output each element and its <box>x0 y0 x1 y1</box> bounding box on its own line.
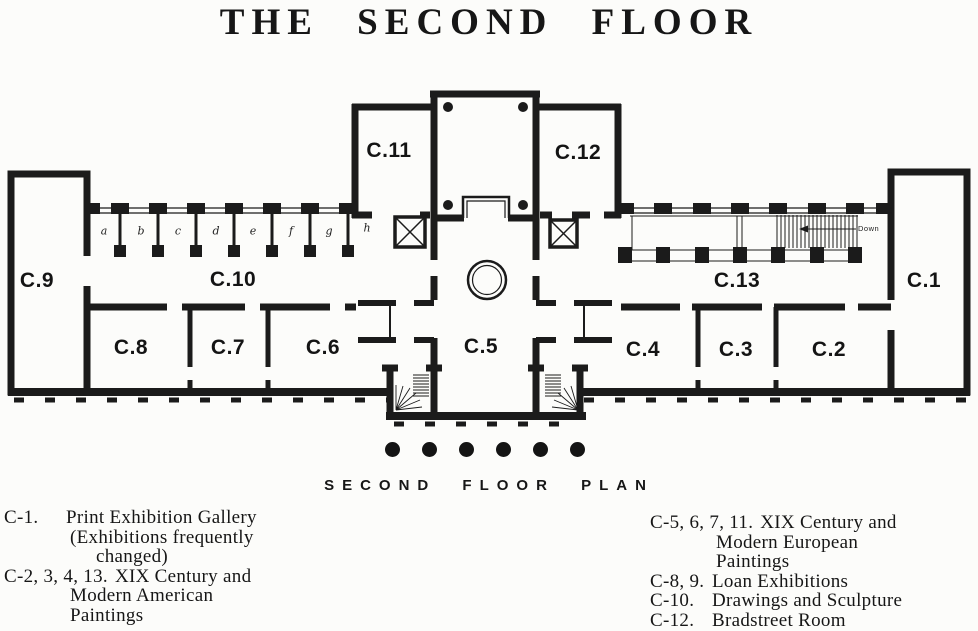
alcove-letter-e: e <box>250 225 257 238</box>
legend-text: XIX Century and <box>760 512 896 533</box>
alcove-letter-g: g <box>325 225 332 238</box>
legend-text: Drawings and Sculpture <box>712 590 902 611</box>
room-label-c9: C.9 <box>20 269 54 293</box>
room-label-c1: C.1 <box>907 269 941 293</box>
alcove-partitions <box>114 214 354 257</box>
legend-text: Loan Exhibitions <box>712 571 848 592</box>
alcove-letter-f: f <box>289 225 293 238</box>
legend-text: Paintings <box>650 552 976 572</box>
plan-caption: SECOND FLOOR PLAN <box>0 477 978 494</box>
room-label-c4: C.4 <box>626 338 660 362</box>
entrance-dot <box>570 442 585 457</box>
legend-line: C-12.Bradstreet Room <box>650 611 976 631</box>
room-label-c13: C.13 <box>714 269 760 293</box>
column-dot <box>518 102 528 112</box>
legend-line: C-8, 9.Loan Exhibitions <box>650 572 976 592</box>
ramp-label: Down <box>858 224 879 233</box>
legend-text: (Exhibitions frequently <box>4 528 364 548</box>
legend-key: C-1. <box>4 508 66 528</box>
legend-key: C-12. <box>650 611 712 631</box>
legend-line: C-1.Print Exhibition Gallery <box>4 508 364 528</box>
legend-line: C-2, 3, 4, 13.XIX Century and <box>4 567 364 587</box>
alcove-letter-d: d <box>212 225 219 238</box>
entrance-dot <box>459 442 474 457</box>
elevator-icon <box>395 217 425 247</box>
legend-entry: C-8, 9.Loan Exhibitions <box>650 572 976 592</box>
legend-line: C-10.Drawings and Sculpture <box>650 591 976 611</box>
entrance-dot <box>422 442 437 457</box>
stair-fan-icon <box>552 385 578 410</box>
column-dot <box>443 102 453 112</box>
room-label-c6: C.6 <box>306 336 340 360</box>
room-label-c2: C.2 <box>812 338 846 362</box>
legend-left: C-1.Print Exhibition Gallery (Exhibition… <box>4 508 364 625</box>
legend-text: Paintings <box>4 606 364 626</box>
legend-right: C-5, 6, 7, 11.XIX Century and Modern Eur… <box>650 513 976 630</box>
legend-text: Bradstreet Room <box>712 610 846 631</box>
legend-text: Modern European <box>650 533 976 553</box>
legend-text: XIX Century and <box>115 566 251 587</box>
stair-towers <box>382 368 588 414</box>
window-wall-right <box>616 203 892 214</box>
room-label-c8: C.8 <box>114 336 148 360</box>
entrance-dot <box>496 442 511 457</box>
elevator-icon <box>550 220 577 247</box>
stair-treads-icon <box>545 375 561 396</box>
window-wall-left <box>86 203 357 214</box>
legend-entry: C-12.Bradstreet Room <box>650 611 976 631</box>
legend-entry: C-10.Drawings and Sculpture <box>650 591 976 611</box>
legend-entry: C-5, 6, 7, 11.XIX Century and Modern Eur… <box>650 513 976 572</box>
entrance-dots-row <box>385 442 585 457</box>
legend-entry: C-2, 3, 4, 13.XIX Century and Modern Ame… <box>4 567 364 626</box>
legend-text: Modern American <box>4 586 364 606</box>
entrance-dot <box>533 442 548 457</box>
legend-text: changed) <box>4 547 364 567</box>
room-label-c10: C.10 <box>210 268 256 292</box>
entrance-dot <box>385 442 400 457</box>
alcove-letter-a: a <box>101 225 108 238</box>
legend-key: C-5, 6, 7, 11. <box>650 512 753 533</box>
stair-treads-icon <box>413 375 429 396</box>
ramp-hatch <box>777 215 857 248</box>
column-dot <box>518 200 528 210</box>
legend-entry: C-1.Print Exhibition Gallery (Exhibition… <box>4 508 364 567</box>
alcove-letter-h: h <box>363 222 370 235</box>
room-label-c12: C.12 <box>555 141 601 165</box>
room-label-c11: C.11 <box>366 139 411 163</box>
south-walls <box>8 392 970 424</box>
room-label-c5: C.5 <box>464 335 498 359</box>
room-label-c7: C.7 <box>211 336 245 360</box>
colonnade-c13 <box>618 215 862 263</box>
legend-key: C-2, 3, 4, 13. <box>4 566 108 587</box>
room-label-c3: C.3 <box>719 338 753 362</box>
legend-key: C-10. <box>650 591 712 611</box>
legend-text: Print Exhibition Gallery <box>66 507 257 528</box>
alcove-letter-c: c <box>175 225 181 238</box>
column-dot <box>443 200 453 210</box>
stair-fan-icon <box>396 385 422 410</box>
oculus-circle <box>468 261 506 299</box>
door-recess <box>463 197 509 218</box>
legend-line: C-5, 6, 7, 11.XIX Century and <box>650 513 976 533</box>
ramp-leader-arrow <box>799 226 808 233</box>
legend-key: C-8, 9. <box>650 572 712 592</box>
alcove-letter-b: b <box>137 225 144 238</box>
